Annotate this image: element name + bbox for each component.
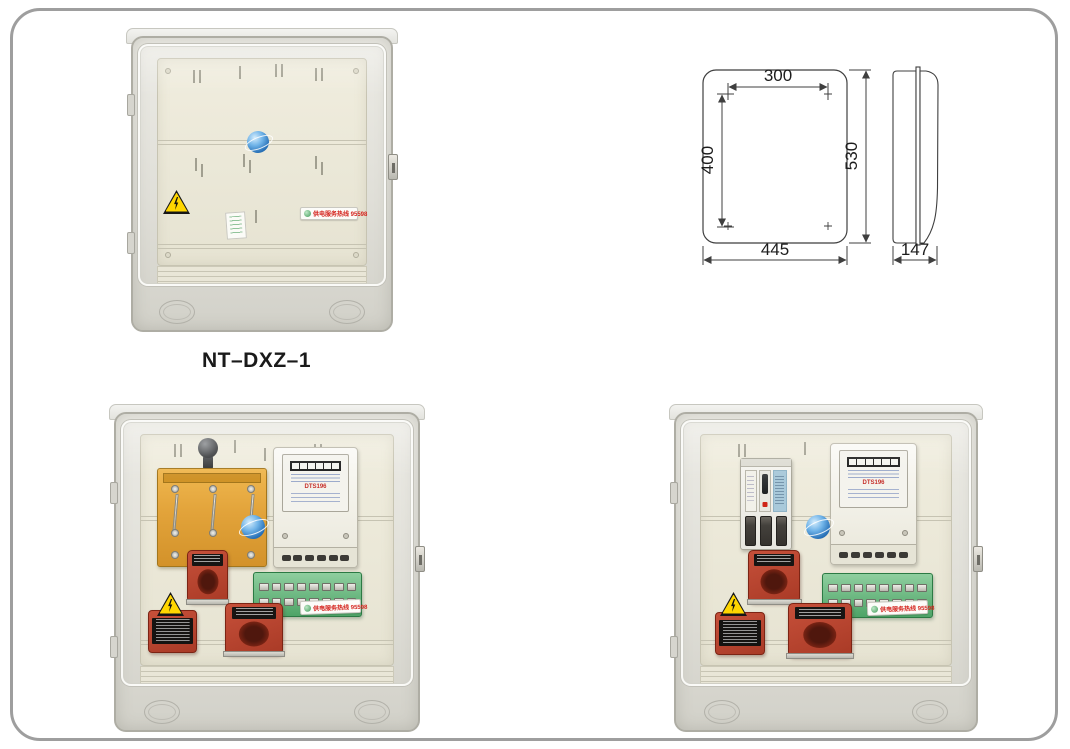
photo-knife-switch-box: DTS196 供电服务热线 95598 — [114, 404, 420, 732]
breaker-spec-label — [773, 470, 787, 512]
meter-model-text: DTS196 — [840, 480, 907, 487]
current-transformer — [748, 550, 800, 603]
meter-spec-text — [291, 493, 340, 505]
side-view-outline — [893, 67, 938, 245]
latch-icon — [973, 546, 983, 572]
panel-hole — [353, 252, 359, 258]
ct-label — [192, 554, 223, 566]
knockout-right — [912, 700, 948, 724]
meter-terminal-cover — [831, 544, 916, 564]
meter-screw — [343, 533, 349, 539]
blue-globe-icon — [241, 515, 265, 539]
circuit-breaker — [740, 458, 792, 550]
current-transformer — [187, 550, 228, 603]
hotline-sticker: 供电服务热线 95598 — [867, 600, 928, 616]
lower-gland-area — [140, 666, 394, 684]
ct-label — [232, 607, 277, 619]
current-transformer — [788, 603, 852, 657]
blue-globe-icon — [247, 131, 269, 153]
utility-logo-icon — [304, 210, 311, 217]
knockout-right — [329, 300, 365, 324]
panel-groove — [157, 248, 367, 249]
meter-screw — [282, 533, 288, 539]
knockout-right — [354, 700, 390, 724]
hinge-icon — [670, 636, 678, 658]
mounting-panel — [157, 58, 367, 266]
ct-foot — [786, 653, 854, 659]
lower-gland-area — [157, 266, 367, 284]
breaker-face — [745, 470, 787, 512]
meter-type-text — [848, 470, 899, 479]
energy-meter: DTS196 — [273, 447, 358, 568]
terminal-row — [828, 584, 927, 592]
panel-groove — [157, 244, 367, 245]
certificate-label — [225, 211, 247, 239]
panel-hole — [353, 68, 359, 74]
dim-depth-label: 147 — [901, 240, 929, 259]
ct-label — [795, 607, 845, 619]
lightning-bolt-icon — [173, 197, 181, 210]
hinge-icon — [127, 232, 135, 254]
ct-foot — [186, 599, 229, 605]
photo-empty-box: 供电服务热线 95598 — [131, 28, 393, 332]
lightning-bolt-icon — [730, 599, 738, 612]
meter-register — [847, 457, 900, 467]
knockout-left — [704, 700, 740, 724]
ct-foot — [223, 651, 285, 657]
hotline-text: 供电服务热线 95598 — [313, 209, 367, 218]
meter-register — [290, 461, 341, 471]
product-model-label: NT–DXZ–1 — [202, 349, 311, 373]
photo-breaker-box: DTS196 供电服务热线 95598 — [674, 404, 978, 732]
lightning-bolt-icon — [167, 599, 175, 612]
hotline-sticker: 供电服务热线 95598 — [300, 207, 358, 220]
breaker-toggle-column — [759, 470, 771, 512]
knockout-left — [144, 700, 180, 724]
hinge-icon — [670, 482, 678, 504]
meter-face: DTS196 — [282, 454, 349, 512]
ct-hole — [197, 569, 218, 595]
utility-logo-icon — [871, 605, 878, 612]
knockout-left — [159, 300, 195, 324]
lower-gland-area — [700, 666, 952, 684]
dim-hole-width-label: 300 — [764, 66, 792, 85]
mounting-hole-marks — [724, 90, 832, 230]
switch-handle-ball — [198, 438, 218, 458]
energy-meter: DTS196 — [830, 443, 917, 565]
hotline-text: 供电服务热线 95598 — [313, 601, 368, 612]
panel-hole — [165, 252, 171, 258]
meter-face: DTS196 — [839, 450, 908, 508]
current-transformer-side — [148, 610, 197, 653]
ct-label — [754, 554, 794, 566]
dim-hole-height-label: 400 — [698, 146, 717, 174]
current-transformer-side — [715, 612, 765, 655]
panel-hole — [165, 68, 171, 74]
meter-spec-text — [848, 489, 899, 501]
meter-model-text: DTS196 — [283, 484, 348, 491]
dim-overall-height-label: 530 — [842, 142, 861, 170]
breaker-rating-label — [745, 470, 757, 512]
breaker-terminals — [745, 516, 787, 546]
blue-globe-icon — [806, 515, 830, 539]
switch-pole — [168, 485, 182, 561]
terminal-row — [259, 583, 356, 591]
utility-logo-icon — [304, 604, 311, 611]
breaker-top — [741, 459, 791, 467]
meter-screw — [839, 530, 845, 536]
ct-hole — [803, 622, 836, 648]
hinge-icon — [127, 94, 135, 116]
latch-icon — [388, 154, 398, 180]
switch-hinge-bar — [163, 473, 261, 483]
meter-type-text — [291, 474, 340, 483]
ct-hole — [239, 622, 269, 647]
dimension-drawing: 300 400 530 445 147 — [690, 42, 1000, 277]
hinge-icon — [110, 636, 118, 658]
hotline-sticker: 供电服务热线 95598 — [300, 599, 361, 615]
meter-screw — [902, 530, 908, 536]
current-transformer — [225, 603, 283, 655]
front-view-outline — [703, 70, 847, 243]
ct-spec-label — [719, 620, 761, 646]
ct-hole — [761, 569, 788, 595]
hotline-text: 供电服务热线 95598 — [880, 602, 935, 613]
breaker-toggle — [762, 474, 768, 494]
dim-overall-width-label: 445 — [761, 240, 789, 259]
meter-terminal-cover — [274, 547, 357, 567]
hinge-icon — [110, 482, 118, 504]
ct-spec-label — [152, 618, 193, 644]
breaker-on-indicator — [762, 502, 767, 507]
latch-icon — [415, 546, 425, 572]
